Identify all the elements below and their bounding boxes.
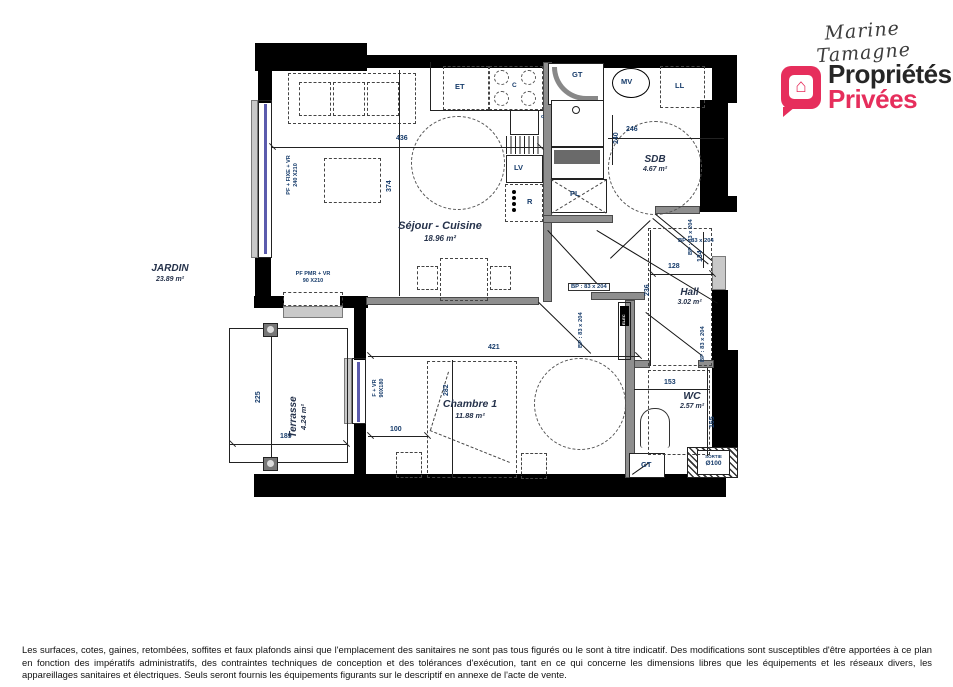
agency-logo: ⌂ Propriétés Privées bbox=[781, 62, 952, 112]
partition-wall bbox=[543, 215, 613, 223]
dishwasher-label: LV bbox=[514, 163, 523, 172]
wall-segment bbox=[254, 296, 284, 308]
wall-segment bbox=[712, 55, 737, 103]
sink-unit bbox=[443, 66, 489, 110]
sink-label: ET bbox=[455, 82, 465, 91]
sofa-seat bbox=[333, 82, 365, 116]
vent-grille bbox=[506, 136, 540, 154]
logo-line2: Privées bbox=[828, 87, 952, 112]
window-type: PF + FIXE + VR bbox=[286, 143, 293, 207]
room-area: 18.96 m² bbox=[380, 234, 500, 243]
dim-label: 282 bbox=[443, 384, 450, 396]
dim-label: 153 bbox=[664, 379, 676, 386]
window-type: PF PMR + VR bbox=[283, 271, 343, 278]
dim-label: 421 bbox=[488, 344, 500, 351]
partition-wall bbox=[591, 292, 645, 300]
wall-segment bbox=[700, 196, 737, 212]
terrace-door-sill bbox=[283, 306, 343, 318]
window-sill bbox=[251, 100, 258, 258]
fridge bbox=[505, 184, 543, 222]
fridge-dots-icon bbox=[512, 190, 516, 194]
dining-table bbox=[440, 258, 488, 301]
room-name: SDB bbox=[630, 154, 680, 165]
window-label: F + VR 90X180 bbox=[372, 364, 386, 412]
dim-label: 436 bbox=[396, 135, 408, 142]
window-size: 90X180 bbox=[379, 364, 386, 412]
dimension-line bbox=[368, 356, 640, 357]
dimension-line bbox=[272, 147, 543, 148]
coffee-table bbox=[324, 158, 381, 203]
post-cap-icon bbox=[267, 460, 274, 467]
shower-drain-icon bbox=[572, 106, 580, 114]
room-name: Hall bbox=[662, 287, 717, 298]
nightstand bbox=[521, 453, 547, 479]
washing-machine-label: LL bbox=[675, 81, 684, 90]
terrace-area: 4.24 m² bbox=[299, 386, 308, 448]
window-label: PF PMR + VR 90 X210 bbox=[283, 271, 343, 285]
dim-label: 128 bbox=[668, 263, 680, 270]
door-swing bbox=[610, 220, 651, 259]
window-size: 90 X210 bbox=[283, 278, 343, 285]
terrace-post bbox=[263, 323, 278, 337]
logo-house-bubble-icon: ⌂ bbox=[781, 66, 821, 109]
dim-label: 240 bbox=[613, 132, 620, 144]
fridge-label: R bbox=[527, 197, 532, 206]
door-label: BP : 83 x 204 bbox=[678, 238, 714, 244]
room-name: WC bbox=[668, 390, 716, 402]
dim-label: 134 bbox=[697, 250, 704, 262]
post-cap-icon bbox=[267, 326, 274, 333]
room-area: 11.88 m² bbox=[420, 411, 520, 420]
nightstand bbox=[396, 452, 422, 478]
room-name: Terrasse 4.24 m² bbox=[288, 386, 308, 448]
door-label: BP : 83 x 204 bbox=[568, 283, 610, 291]
dim-label: 100 bbox=[390, 426, 402, 433]
terrace-line bbox=[271, 328, 272, 463]
door-label: BP : 83 x 204 bbox=[578, 312, 584, 348]
window-label: PF + FIXE + VR 240 X210 bbox=[286, 143, 300, 207]
dimension-line bbox=[399, 70, 400, 296]
room-area: 4.67 m² bbox=[630, 166, 680, 173]
window-type: F + VR bbox=[372, 364, 379, 412]
wc-sink-label: GT bbox=[641, 460, 651, 469]
dim-label: 165 bbox=[709, 416, 716, 428]
dimension-line bbox=[707, 368, 708, 456]
sofa-seat bbox=[367, 82, 399, 116]
room-name: JARDIN bbox=[140, 263, 200, 274]
terrace-door-frame bbox=[283, 292, 343, 306]
counter-line bbox=[430, 62, 431, 110]
window-size: 240 X210 bbox=[293, 143, 300, 207]
turning-circle bbox=[534, 358, 626, 450]
room-name: Chambre 1 bbox=[420, 398, 520, 410]
entry-door-sill bbox=[712, 256, 726, 290]
dimension-line bbox=[650, 274, 714, 275]
burner-icon bbox=[494, 70, 509, 85]
burner-icon bbox=[521, 70, 536, 85]
disclaimer-text: Les surfaces, cotes, gaines, retombées, … bbox=[22, 644, 932, 682]
door-label: BP : 83 x 204 bbox=[700, 326, 706, 362]
elec-niche bbox=[618, 302, 631, 360]
dim-label: 374 bbox=[386, 180, 393, 192]
oven bbox=[510, 110, 539, 135]
closet-label: PL bbox=[570, 189, 580, 198]
duct-label: GT bbox=[572, 70, 582, 79]
window-glazing bbox=[357, 362, 360, 422]
sofa-seat bbox=[299, 82, 331, 116]
burner-icon bbox=[494, 91, 509, 106]
window-glazing bbox=[264, 104, 267, 254]
turning-circle bbox=[411, 116, 505, 210]
wall-segment bbox=[354, 300, 366, 360]
room-name: Séjour - Cuisine bbox=[380, 220, 500, 232]
room-area: 23.89 m² bbox=[140, 276, 200, 283]
dimension-line bbox=[368, 436, 428, 437]
cooktop-label: C bbox=[512, 82, 517, 89]
door-swing bbox=[547, 230, 598, 285]
dim-label: 246 bbox=[626, 126, 638, 133]
terrace-post bbox=[263, 457, 278, 471]
dim-label: 225 bbox=[255, 391, 262, 403]
house-icon: ⌂ bbox=[789, 75, 813, 99]
dim-label: 236 bbox=[644, 284, 651, 296]
air-outlet-diameter: Ø100 bbox=[698, 460, 729, 468]
burner-icon bbox=[521, 91, 536, 106]
oven-label: c bbox=[541, 114, 544, 120]
wc-boundary bbox=[648, 370, 710, 455]
logo-wordmark: Propriétés Privées bbox=[828, 62, 952, 112]
chair bbox=[490, 266, 511, 290]
dimension-line bbox=[608, 138, 724, 139]
bathtub-edge bbox=[554, 150, 600, 164]
wall-segment bbox=[354, 424, 366, 476]
room-area: 2.57 m² bbox=[668, 403, 716, 410]
washbasin-label: MV bbox=[621, 77, 632, 86]
room-area: 3.02 m² bbox=[662, 299, 717, 306]
wall-segment bbox=[258, 43, 272, 103]
dimension-line bbox=[650, 230, 651, 366]
terrace-name: Terrasse bbox=[288, 386, 299, 448]
chair bbox=[417, 266, 438, 290]
dishwasher bbox=[506, 155, 543, 183]
